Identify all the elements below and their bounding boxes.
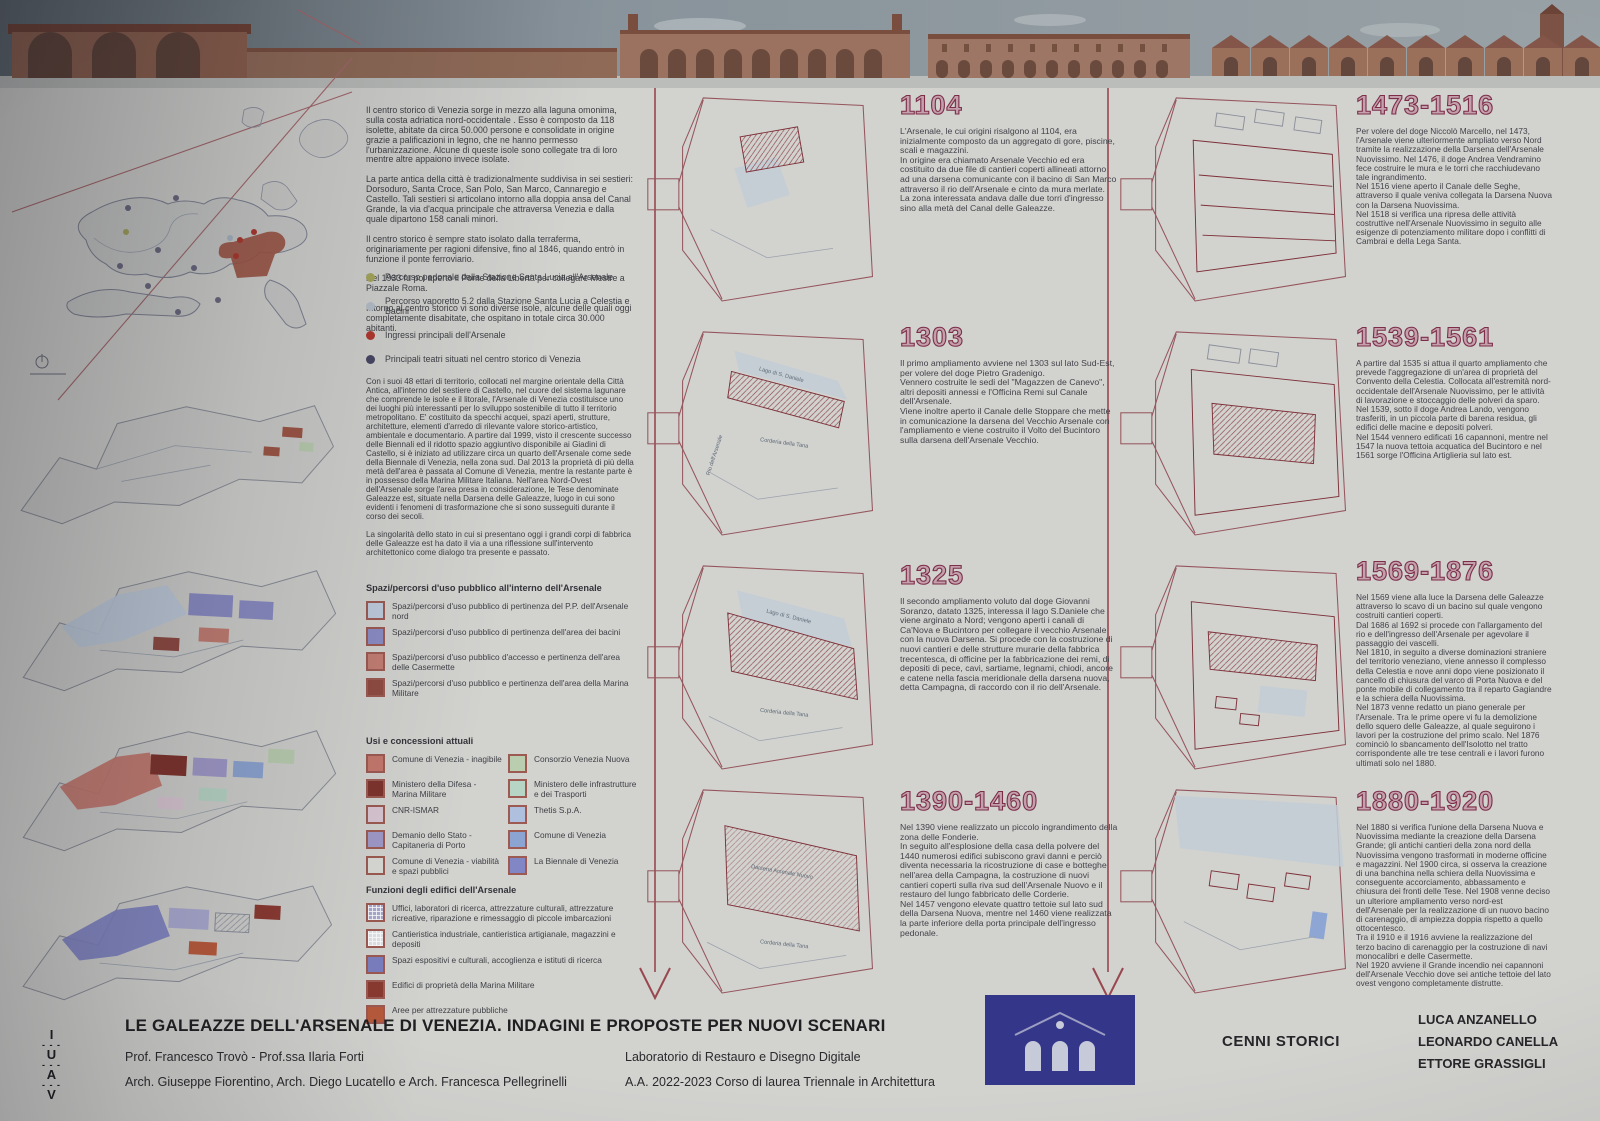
legend-label: Spazi/percorsi d'uso pubblico di pertine… <box>392 627 620 638</box>
legend-item: Cantieristica industriale, cantieristica… <box>366 929 642 949</box>
arsenale-map-outline <box>0 380 345 535</box>
timeline-year: 1473-1516 <box>1356 90 1552 121</box>
legend-item: Principali teatri situati nel centro sto… <box>366 354 634 364</box>
legend-item: Percorso pedonale dalla Stazione Santa L… <box>366 272 634 282</box>
legend-title: Funzioni degli edifici dell'Arsenale <box>366 885 642 895</box>
timeline-text: A partire dal 1535 si attua il quarto am… <box>1356 359 1552 460</box>
legend-item: Spazi/percorsi d'uso pubblico e pertinen… <box>366 678 638 698</box>
funzioni-legend: Funzioni degli edifici dell'Arsenale Uff… <box>366 885 642 1030</box>
legend-label: Cantieristica industriale, cantieristica… <box>392 929 642 949</box>
timeline-section-1569-1876: 1569-1876 Nel 1569 viene alla luce la Da… <box>1356 556 1552 768</box>
spazi-legend: Spazi/percorsi d'uso pubblico all'intern… <box>366 583 638 705</box>
timeline-text: Nel 1390 viene realizzato un piccolo ing… <box>900 823 1118 938</box>
timeline-text: Per volere del doge Niccolò Marcello, ne… <box>1356 127 1552 247</box>
lab-line: Laboratorio di Restauro e Disegno Digita… <box>625 1050 861 1064</box>
color-swatch <box>366 929 385 948</box>
author-name: LEONARDO CANELLA <box>1418 1034 1558 1049</box>
plan-1325: Lago di S. Daniele Corderia della Tana <box>645 556 880 778</box>
authors-list: LUCA ANZANELLO LEONARDO CANELLA ETTORE G… <box>1418 1012 1558 1078</box>
color-swatch <box>366 980 385 999</box>
legend-item: Comune di Venezia - viabilità e spazi pu… <box>366 856 504 876</box>
legend-title: Usi e concessioni attuali <box>366 736 642 746</box>
intro-paragraph: La parte antica della città è tradiziona… <box>366 175 634 225</box>
intro-paragraph: Il centro storico di Venezia sorge in me… <box>366 106 634 165</box>
iuav-letter: U <box>47 1050 56 1060</box>
timeline-year: 1303 <box>900 322 1118 353</box>
poster-board: Il centro storico di Venezia sorge in me… <box>0 0 1600 1121</box>
author-name: LUCA ANZANELLO <box>1418 1012 1558 1027</box>
timeline-section-1104: 1104 L'Arsenale, le cui origini risalgon… <box>900 90 1118 213</box>
plan-1569-1876 <box>1118 556 1353 778</box>
entrances-dot-icon <box>366 331 375 340</box>
intro-paragraph: Il centro storico è sempre stato isolato… <box>366 235 634 265</box>
theatres-dot-icon <box>366 355 375 364</box>
legend-label: Spazi/percorsi d'uso pubblico di pertine… <box>392 601 638 621</box>
legend-item: Uffici, laboratori di ricerca, attrezzat… <box>366 903 642 923</box>
legend-item: Spazi espositivi e culturali, accoglienz… <box>366 955 642 974</box>
vaporetto-route-dot-icon <box>366 302 375 311</box>
legend-item: Ingressi principali dell'Arsenale <box>366 330 634 340</box>
plan-label-corderia: Corderia della Tana <box>760 939 810 950</box>
arsenale-map-funzioni <box>2 862 342 1012</box>
timeline-year: 1325 <box>900 560 1118 591</box>
legend-item: Demanio dello Stato - Capitaneria di Por… <box>366 830 504 850</box>
legend-item: Spazi/percorsi d'uso pubblico di pertine… <box>366 601 638 621</box>
plan-label-corderia: Corderia della Tana <box>760 708 810 719</box>
color-swatch <box>366 601 385 620</box>
arsenale-paragraph: Con i suoi 48 ettari di territorio, coll… <box>366 377 634 521</box>
timeline-year: 1104 <box>900 90 1118 121</box>
legend-item: Spazi/percorsi d'uso pubblico d'accesso … <box>366 652 638 672</box>
plan-1473-1516 <box>1118 88 1353 310</box>
color-swatch <box>366 678 385 697</box>
color-swatch <box>508 856 527 875</box>
color-swatch <box>366 903 385 922</box>
timeline-year: 1569-1876 <box>1356 556 1552 587</box>
color-swatch <box>508 805 527 824</box>
section-label: CENNI STORICI <box>1222 1033 1340 1050</box>
plan-label-rio: Rio dell'Arsenale <box>706 434 725 476</box>
color-swatch <box>366 754 385 773</box>
legend-label: Principali teatri situati nel centro sto… <box>385 354 581 364</box>
timeline-text: Il primo ampliamento avviene nel 1303 su… <box>900 359 1118 445</box>
legend-label: Percorso pedonale dalla Stazione Santa L… <box>385 272 613 282</box>
legend-label: Edifici di proprietà della Marina Milita… <box>392 980 535 991</box>
color-swatch <box>366 830 385 849</box>
timeline-text: L'Arsenale, le cui origini risalgono al … <box>900 127 1118 213</box>
legend-label: Ministero delle infrastrutture e dei Tra… <box>534 779 640 799</box>
color-swatch <box>508 754 527 773</box>
plan-1539-1561 <box>1118 322 1353 544</box>
iuav-letter: I <box>50 1030 54 1040</box>
color-swatch <box>366 805 385 824</box>
legend-item: Thetis S.p.A. <box>508 805 640 824</box>
plan-1303: Lago di S. Daniele Corderia della Tana R… <box>645 322 880 544</box>
iuav-letter: A <box>47 1070 56 1080</box>
poster-title: LE GALEAZZE DELL'ARSENALE DI VENEZIA. IN… <box>125 1016 886 1036</box>
legend-label: Percorso vaporetto 5.2 dalla Stazione Sa… <box>385 296 634 316</box>
legend-label: Comune di Venezia - inagibile <box>392 754 502 765</box>
legend-label: Uffici, laboratori di ricerca, attrezzat… <box>392 903 642 923</box>
timeline-text: Nel 1880 si verifica l'unione della Dars… <box>1356 823 1552 989</box>
arsenale-text: Con i suoi 48 ettari di territorio, coll… <box>366 368 634 566</box>
legend-item: Ministero della Difesa - Marina Militare <box>366 779 504 799</box>
legend-item: Comune di Venezia <box>508 830 640 850</box>
legend-label: Aree per attrezzature pubbliche <box>392 1005 508 1016</box>
legend-label: La Biennale di Venezia <box>534 856 618 867</box>
arsenale-paragraph: La singolarità dello stato in cui si pre… <box>366 530 634 557</box>
legend-label: Ingressi principali dell'Arsenale <box>385 330 506 340</box>
iuav-letter: V <box>47 1090 56 1100</box>
timeline-year: 1539-1561 <box>1356 322 1552 353</box>
venice-lagoon-map <box>8 90 358 385</box>
color-swatch <box>508 779 527 798</box>
legend-item: Comune di Venezia - inagibile <box>366 754 504 773</box>
color-swatch <box>366 652 385 671</box>
color-swatch <box>508 830 527 849</box>
legend-label: CNR-ISMAR <box>392 805 439 816</box>
legend-label: Spazi espositivi e culturali, accoglienz… <box>392 955 602 966</box>
plan-1390-1460: Darsena Arsenale Nuovo Corderia della Ta… <box>645 780 880 1002</box>
legend-item: Percorso vaporetto 5.2 dalla Stazione Sa… <box>366 296 634 316</box>
pedestrian-route-dot-icon <box>366 273 375 282</box>
legend-label: Comune di Venezia - viabilità e spazi pu… <box>392 856 504 876</box>
legend-item: Consorzio Venezia Nuova <box>508 754 640 773</box>
plan-1104 <box>645 88 880 310</box>
legend-item: Ministero delle infrastrutture e dei Tra… <box>508 779 640 799</box>
color-swatch <box>366 856 385 875</box>
timeline-year: 1880-1920 <box>1356 786 1552 817</box>
architects-line: Arch. Giuseppe Fiorentino, Arch. Diego L… <box>125 1075 567 1089</box>
professors-line: Prof. Francesco Trovò - Prof.ssa Ilaria … <box>125 1050 364 1064</box>
timeline-section-1880-1920: 1880-1920 Nel 1880 si verifica l'unione … <box>1356 786 1552 989</box>
legend-label: Consorzio Venezia Nuova <box>534 754 629 765</box>
color-swatch <box>366 627 385 646</box>
plan-label-corderia: Corderia della Tana <box>760 437 810 450</box>
timeline-section-1325: 1325 Il secondo ampliamento voluto dal d… <box>900 560 1118 693</box>
author-name: ETTORE GRASSIGLI <box>1418 1056 1558 1071</box>
legend-label: Spazi/percorsi d'uso pubblico d'accesso … <box>392 652 638 672</box>
legend-title: Spazi/percorsi d'uso pubblico all'intern… <box>366 583 638 593</box>
legend-label: Demanio dello Stato - Capitaneria di Por… <box>392 830 504 850</box>
routes-legend: Percorso pedonale dalla Stazione Santa L… <box>366 272 634 378</box>
arsenale-map-spazi <box>2 545 347 705</box>
north-compass-icon <box>30 354 66 374</box>
university-logo <box>985 995 1135 1085</box>
plan-1880-1920 <box>1118 780 1353 1002</box>
timeline-section-1390-1460: 1390-1460 Nel 1390 viene realizzato un p… <box>900 786 1118 938</box>
legend-label: Thetis S.p.A. <box>534 805 582 816</box>
timeline-text: Il secondo ampliamento voluto dal doge G… <box>900 597 1118 693</box>
timeline-section-1539-1561: 1539-1561 A partire dal 1535 si attua il… <box>1356 322 1552 460</box>
legend-item: Spazi/percorsi d'uso pubblico di pertine… <box>366 627 638 646</box>
legend-item: CNR-ISMAR <box>366 805 504 824</box>
color-swatch <box>366 779 385 798</box>
iuav-logo: I - - - U - - - A - - - V <box>42 1030 61 1100</box>
color-swatch <box>366 955 385 974</box>
legend-label: Spazi/percorsi d'uso pubblico e pertinen… <box>392 678 638 698</box>
timeline-section-1303: 1303 Il primo ampliamento avviene nel 13… <box>900 322 1118 445</box>
legend-item: La Biennale di Venezia <box>508 856 640 876</box>
timeline-year: 1390-1460 <box>900 786 1118 817</box>
legend-item: Edifici di proprietà della Marina Milita… <box>366 980 642 999</box>
usi-legend: Usi e concessioni attuali Comune di Vene… <box>366 736 642 883</box>
course-line: A.A. 2022-2023 Corso di laurea Triennale… <box>625 1075 935 1089</box>
timeline-section-1473-1516: 1473-1516 Per volere del doge Niccolò Ma… <box>1356 90 1552 247</box>
legend-label: Ministero della Difesa - Marina Militare <box>392 779 504 799</box>
timeline-text: Nel 1569 viene alla luce la Darsena dell… <box>1356 593 1552 768</box>
arsenale-map-usi <box>2 705 347 865</box>
legend-label: Comune di Venezia <box>534 830 606 841</box>
